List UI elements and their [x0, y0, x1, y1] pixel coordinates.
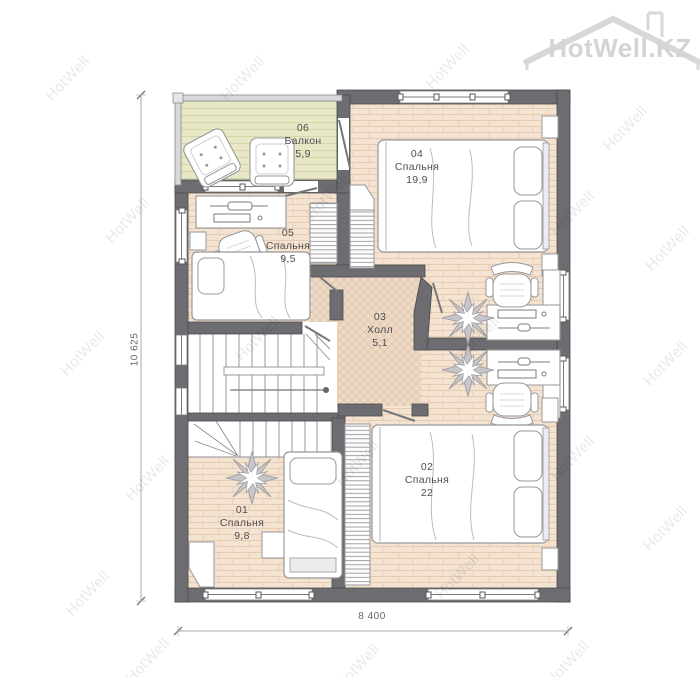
room-label-bedroom01: 01 Спальня 9,8 [194, 504, 290, 543]
dimension-height-label: 10 625 [130, 314, 141, 386]
room-label-bedroom02: 02 Спальня 22 [379, 461, 475, 500]
room-label-balcony: 06 Балкон 5,9 [255, 122, 351, 161]
chair-room04 [486, 263, 538, 308]
logo-text: HotWell.KZ [536, 33, 700, 64]
room-label-bedroom04: 04 Спальня 19,9 [369, 148, 465, 187]
bed-room04 [378, 116, 558, 276]
room-label-hall: 03 Холл 5,1 [332, 311, 428, 350]
dimension-width-label: 8 400 [335, 611, 409, 622]
plant-icon [226, 452, 278, 504]
desk-room05 [196, 196, 286, 228]
room-label-bedroom05: 05 Спальня 9,5 [240, 227, 336, 266]
floor-plan-page: HotWell HotWell HotWell HotWell HotWell … [0, 0, 700, 677]
chair-room02 [486, 383, 538, 428]
